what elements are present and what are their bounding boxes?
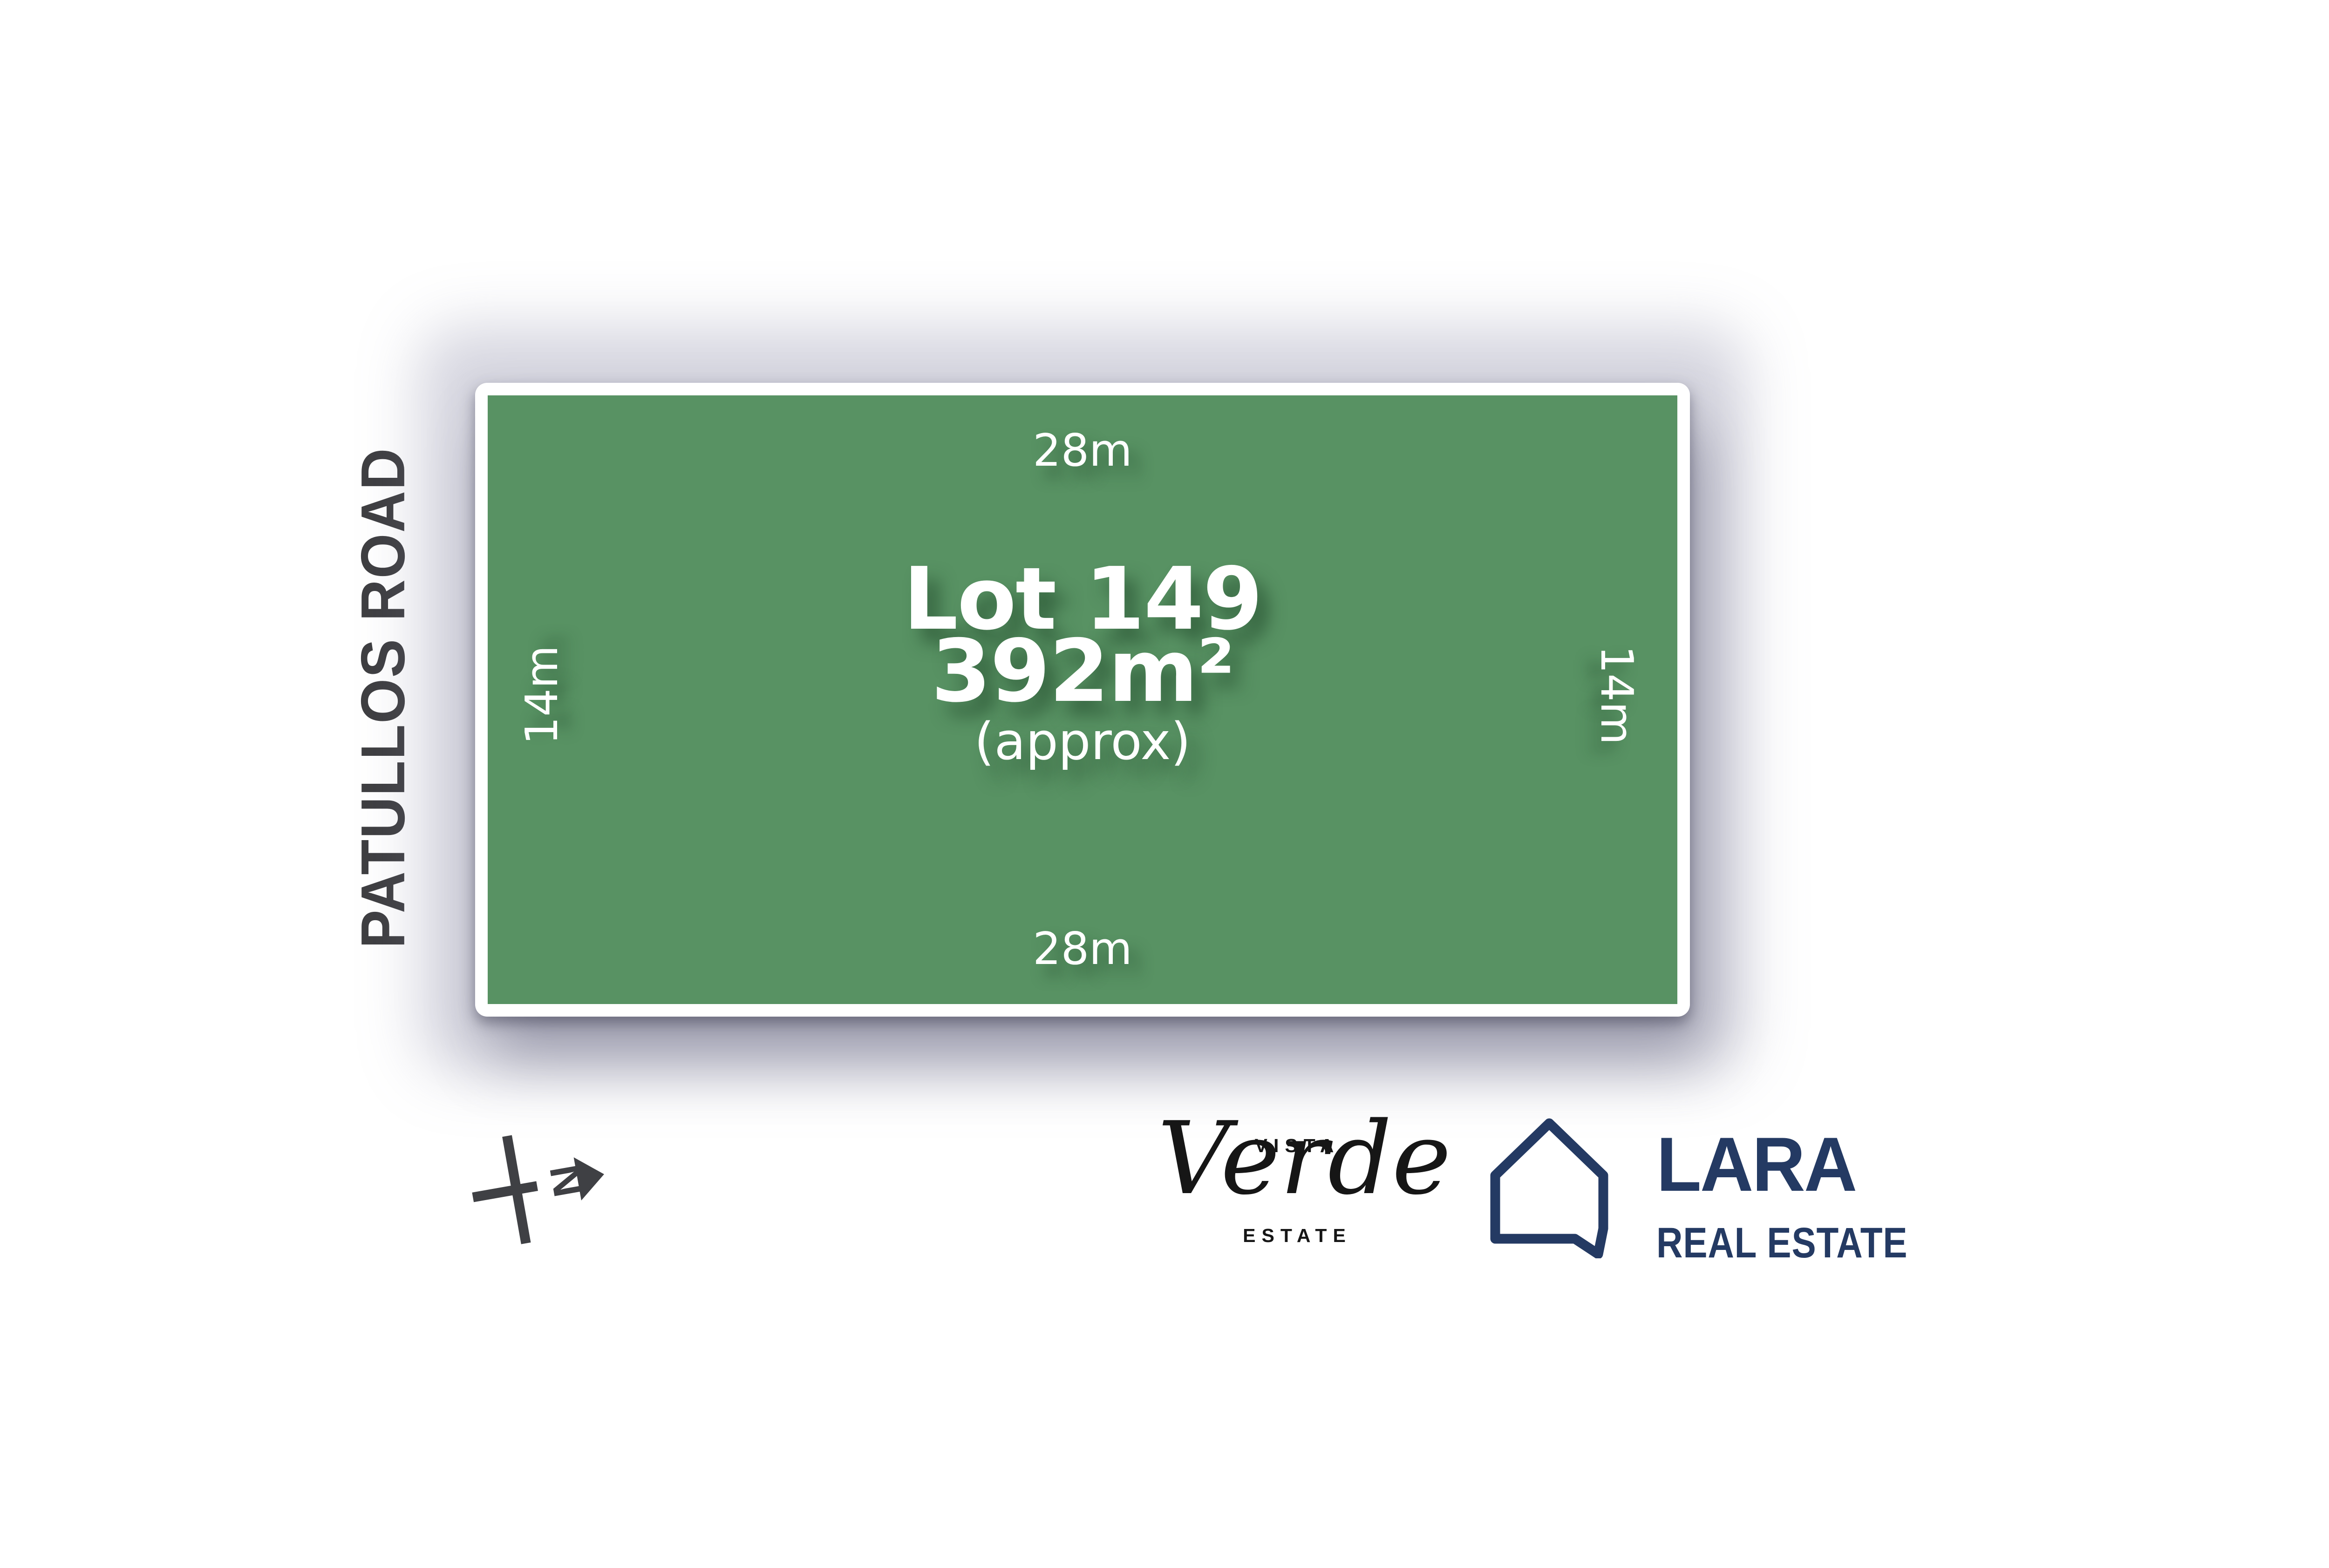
lara-real-estate-logo: LARA REAL ESTATE: [1485, 1117, 1933, 1261]
vista-verde-script-word: Verde: [1158, 1093, 1437, 1224]
vista-verde-word-top: VISTA: [1158, 1136, 1437, 1155]
lara-text-block: LARA REAL ESTATE: [1656, 1126, 1952, 1264]
north-cross-short-bar: [473, 1186, 537, 1197]
dimension-bottom: 28m: [488, 927, 1677, 971]
vista-verde-word-bottom: ESTATE: [1158, 1226, 1437, 1245]
house-outline: [1495, 1123, 1603, 1254]
north-arrow-svg: N: [461, 1115, 623, 1255]
lot-area-note: (approx): [488, 716, 1677, 767]
dimension-top: 28m: [488, 429, 1677, 473]
agency-tagline: REAL ESTATE: [1656, 1222, 1907, 1264]
agency-name: LARA: [1656, 1126, 1940, 1203]
lot-area: 392m²: [488, 628, 1677, 714]
street-name: PATULLOS ROAD: [348, 447, 419, 948]
site-plan: PATULLOS ROAD 28m 28m 14m 14m Lot 149 39…: [0, 0, 2329, 1568]
lot-parcel: 28m 28m 14m 14m Lot 149 392m² (approx): [475, 383, 1690, 1017]
vista-verde-logo: Verde VISTA ESTATE: [1158, 1090, 1437, 1257]
north-arrow-icon: N: [470, 1127, 614, 1243]
house-pin-icon: [1485, 1117, 1613, 1258]
